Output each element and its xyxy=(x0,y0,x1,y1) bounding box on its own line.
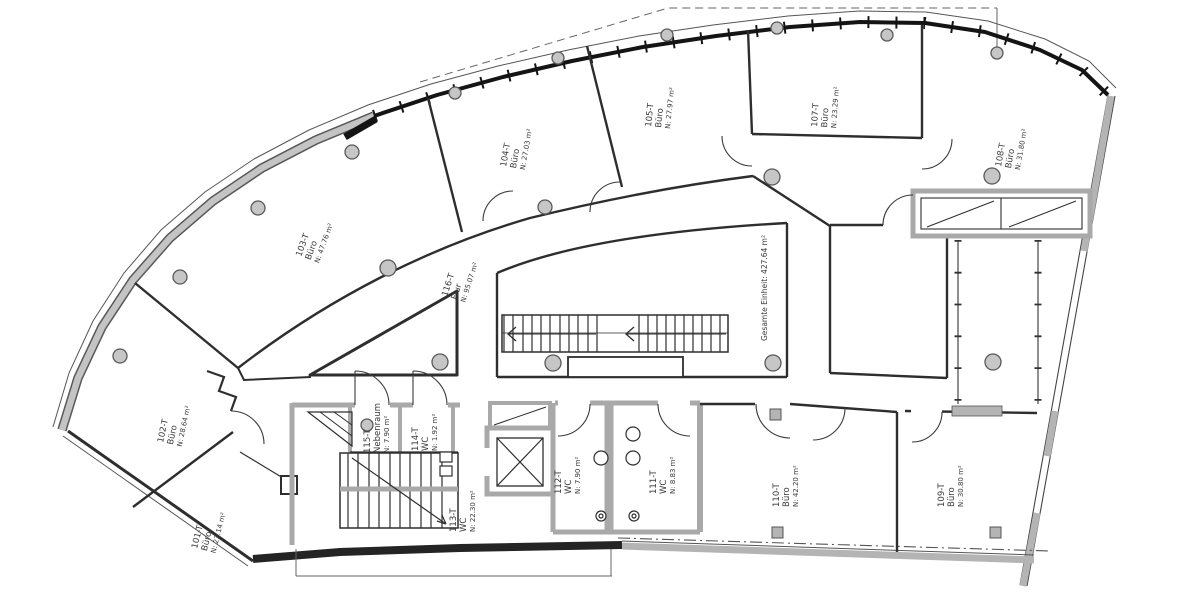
bottom-facade-wall xyxy=(253,545,622,559)
floor-drain xyxy=(599,514,603,518)
column xyxy=(251,201,265,215)
door-arc-107-west xyxy=(722,136,752,166)
room-110-area: N: 42.20 m² xyxy=(792,465,800,507)
column xyxy=(552,52,564,64)
floor-plan-drawing: 101-T Büro N: 23.14 m² 102-T Büro N: 28.… xyxy=(0,0,1200,600)
column xyxy=(449,87,461,99)
canopy-dashed-outline xyxy=(420,8,997,82)
wc-fixture xyxy=(440,466,452,476)
bottom-left-edge-wall xyxy=(68,431,253,561)
total-area-text: Gesamte Einheit: 427.64 m² xyxy=(760,235,769,341)
room-label-112: 112-T WC N: 7.90 m² xyxy=(554,457,582,494)
door-gap xyxy=(911,408,942,417)
floor-box xyxy=(772,527,783,538)
column xyxy=(765,355,781,371)
floor-drain xyxy=(632,514,636,518)
room-105-area: N: 27.97 m² xyxy=(664,87,676,130)
wall-104-105 xyxy=(587,46,622,187)
floor-box xyxy=(990,527,1001,538)
room-110-id: 110-T xyxy=(772,482,782,507)
service-core xyxy=(292,403,700,545)
core-ramp-hatch xyxy=(320,412,352,436)
room-112-area: N: 7.90 m² xyxy=(574,457,582,494)
column xyxy=(173,270,187,284)
room-label-102: 102-T Büro N: 28.64 m² xyxy=(156,401,192,448)
room-113-id: 113-T xyxy=(449,507,459,532)
room-112-id: 112-T xyxy=(554,469,564,494)
room-111-id: 111-T xyxy=(649,469,659,494)
wall-102-entry-zigzag xyxy=(207,371,236,411)
column xyxy=(771,22,783,34)
door-gap xyxy=(558,399,590,408)
room-114-id: 114-T xyxy=(411,426,421,451)
column xyxy=(991,47,1003,59)
bottom-left-edge-line xyxy=(63,436,248,566)
room-109-type: Büro xyxy=(947,487,957,507)
door-gap xyxy=(755,400,790,408)
room-111-type: WC xyxy=(659,480,669,494)
room-109-id: 109-T xyxy=(937,482,947,507)
right-facade-wall-segment xyxy=(1047,411,1055,456)
column xyxy=(881,29,893,41)
room-115-type: Nebenraum xyxy=(373,403,383,453)
room-label-114: 114-T WC N: 1.92 m² xyxy=(411,414,439,451)
column xyxy=(113,349,127,363)
wc-fixture xyxy=(594,451,608,465)
column xyxy=(985,354,1001,370)
room-label-111: 111-T WC N: 8.83 m² xyxy=(649,457,677,494)
room-label-103: 103-T Büro N: 47.76 m² xyxy=(294,215,335,264)
room-102-area: N: 28.64 m² xyxy=(176,405,193,448)
door-arc-111 xyxy=(658,404,690,436)
doors xyxy=(231,136,952,444)
stair-hall xyxy=(310,223,787,377)
columns xyxy=(113,22,1003,538)
right-facade-line-inner xyxy=(1020,95,1108,585)
column xyxy=(380,260,396,276)
door-arc-112 xyxy=(558,404,590,436)
door-arc-105 xyxy=(590,182,620,212)
room-110-type: Büro xyxy=(782,487,792,507)
column xyxy=(345,145,359,159)
wall-109-hatch xyxy=(952,406,1002,416)
room-label-104: 104-T Büro N: 27.03 m² xyxy=(499,125,534,171)
room-107-area: N: 23.29 m² xyxy=(830,86,841,128)
corridor-end-wall xyxy=(238,368,311,380)
room-109-area: N: 30.80 m² xyxy=(957,465,965,507)
wall-110-north-east xyxy=(790,404,897,412)
wall-pilaster-box xyxy=(281,476,297,494)
room-111-area: N: 8.83 m² xyxy=(669,457,677,494)
floor-box xyxy=(770,409,781,420)
column xyxy=(538,200,552,214)
room-113-area: N: 22.30 m² xyxy=(469,490,477,532)
floor-plan-sheet: 101-T Büro N: 23.14 m² 102-T Büro N: 28.… xyxy=(0,0,1200,600)
room-108-area: N: 31.80 m² xyxy=(1014,128,1029,171)
room-115-area: N: 7.90 m² xyxy=(383,416,391,453)
wc-fixture xyxy=(440,452,452,462)
wall-102-103 xyxy=(135,283,238,368)
wall-105-107 xyxy=(748,30,752,134)
left-facade-wall xyxy=(62,116,374,430)
wc-fixture xyxy=(626,427,640,441)
wall-101-north xyxy=(240,452,283,478)
left-facade-wall-edge xyxy=(62,116,374,430)
room-114-type: WC xyxy=(421,437,431,451)
wall-103-104 xyxy=(428,98,462,232)
room-113-type: WC xyxy=(459,518,469,532)
room-115-id: 115-T xyxy=(363,428,373,453)
column xyxy=(432,354,448,370)
total-area-label: Gesamte Einheit: 427.64 m² xyxy=(760,235,769,341)
hall-niche xyxy=(568,357,683,377)
wall-108-room-south xyxy=(830,373,947,378)
east-wing xyxy=(700,191,1090,552)
room-114-area: N: 1.92 m² xyxy=(431,414,439,451)
corridor-outer-wall-east xyxy=(753,176,830,226)
hall-north-wall xyxy=(497,223,787,273)
elevator-door-gap xyxy=(483,448,491,476)
room-label-116: 116-T Flur N: 95.07 m² xyxy=(440,255,480,304)
column xyxy=(984,168,1000,184)
room-116-area: N: 95.07 m² xyxy=(459,261,480,303)
door-arc-107-east xyxy=(922,139,952,169)
door-gap xyxy=(413,400,448,409)
door-arc-110-b xyxy=(813,408,845,440)
curtain-wall xyxy=(374,22,1108,116)
room-112-type: WC xyxy=(564,480,574,494)
main-stair-outline xyxy=(502,315,728,352)
room-label-108: 108-T Büro N: 31.80 m² xyxy=(994,125,1029,171)
core-ramp xyxy=(308,412,352,446)
door-arc-101 xyxy=(231,411,264,444)
column xyxy=(361,419,373,431)
column xyxy=(661,29,673,41)
room-label-110: 110-T Büro N: 42.20 m² xyxy=(772,465,800,507)
door-arc-104 xyxy=(483,191,513,221)
right-facade-wall-segment xyxy=(1023,513,1037,586)
door-arc-108 xyxy=(883,195,913,225)
room-label-107: 107-T Büro N: 23.29 m² xyxy=(810,85,841,129)
right-facade-line-outer xyxy=(1027,96,1115,586)
column xyxy=(545,355,561,371)
door-gap xyxy=(658,399,690,408)
room-label-109: 109-T Büro N: 30.80 m² xyxy=(937,465,965,507)
room-104-area: N: 27.03 m² xyxy=(519,128,534,171)
wc-fixture xyxy=(626,451,640,465)
column xyxy=(764,169,780,185)
room-label-105: 105-T Büro N: 27.97 m² xyxy=(644,85,676,130)
wall-107-south xyxy=(752,134,922,138)
